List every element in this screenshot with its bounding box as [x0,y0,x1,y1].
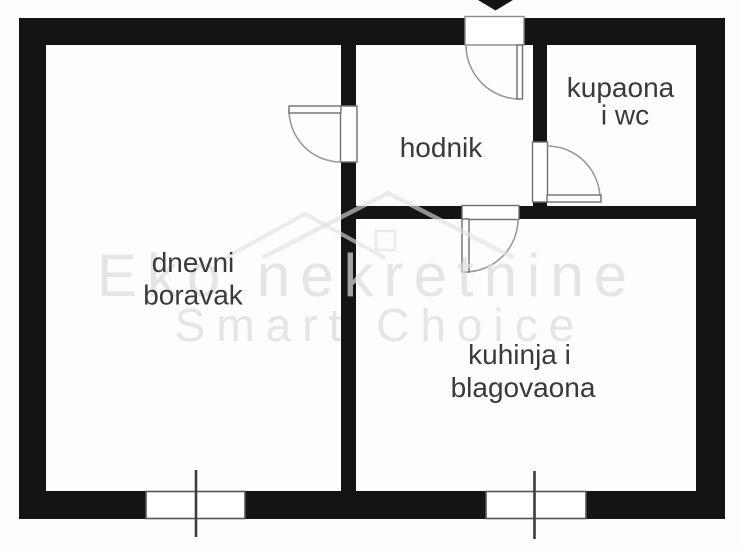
svg-text:kuhinja i: kuhinja i [468,339,571,370]
svg-text:kupaona: kupaona [567,72,675,103]
svg-text:boravak: boravak [143,280,244,311]
svg-text:i wc: i wc [601,100,649,131]
svg-text:hodnik: hodnik [400,132,484,163]
svg-text:dnevni: dnevni [152,247,235,278]
svg-text:blagovaona: blagovaona [451,372,596,403]
